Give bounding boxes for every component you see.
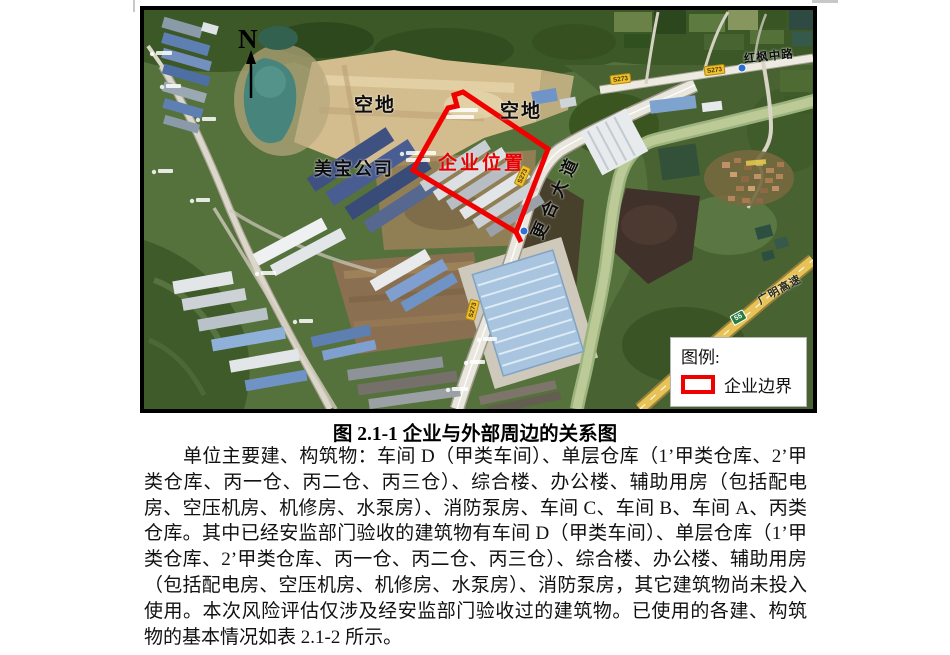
- label-vacant-left: 空地: [354, 96, 396, 115]
- legend-title: 图例:: [681, 343, 720, 368]
- village: [704, 150, 794, 206]
- page-artifact-mark: [133, 0, 135, 12]
- satellite-map: N 空地 空地 美宝公司 企业位置 更合大道 红枫中路 广明高速 S273 S2…: [144, 10, 813, 409]
- legend-box: 图例: 企业边界: [670, 337, 807, 407]
- page-artifact-mark: [812, 0, 838, 3]
- small-pond: [258, 26, 298, 50]
- label-enterprise-location: 企业位置: [438, 154, 526, 173]
- legend-swatch-enterprise-boundary: [681, 375, 715, 394]
- legend-item: 企业边界: [681, 372, 792, 397]
- figure-caption: 图 2.1-1 企业与外部周边的关系图: [0, 417, 950, 446]
- north-indicator: N: [238, 24, 258, 55]
- report-page: N 空地 空地 美宝公司 企业位置 更合大道 红枫中路 广明高速 S273 S2…: [0, 0, 950, 655]
- legend-item-label: 企业边界: [724, 372, 792, 397]
- body-paragraph: 单位主要建、构筑物：车间 D（甲类车间）、单层仓库（1’甲类仓库、2’甲类仓库、…: [144, 444, 807, 650]
- label-meibao-company: 美宝公司: [314, 160, 394, 178]
- label-vacant-right: 空地: [500, 102, 542, 121]
- figure-frame: N 空地 空地 美宝公司 企业位置 更合大道 红枫中路 广明高速 S273 S2…: [140, 6, 817, 413]
